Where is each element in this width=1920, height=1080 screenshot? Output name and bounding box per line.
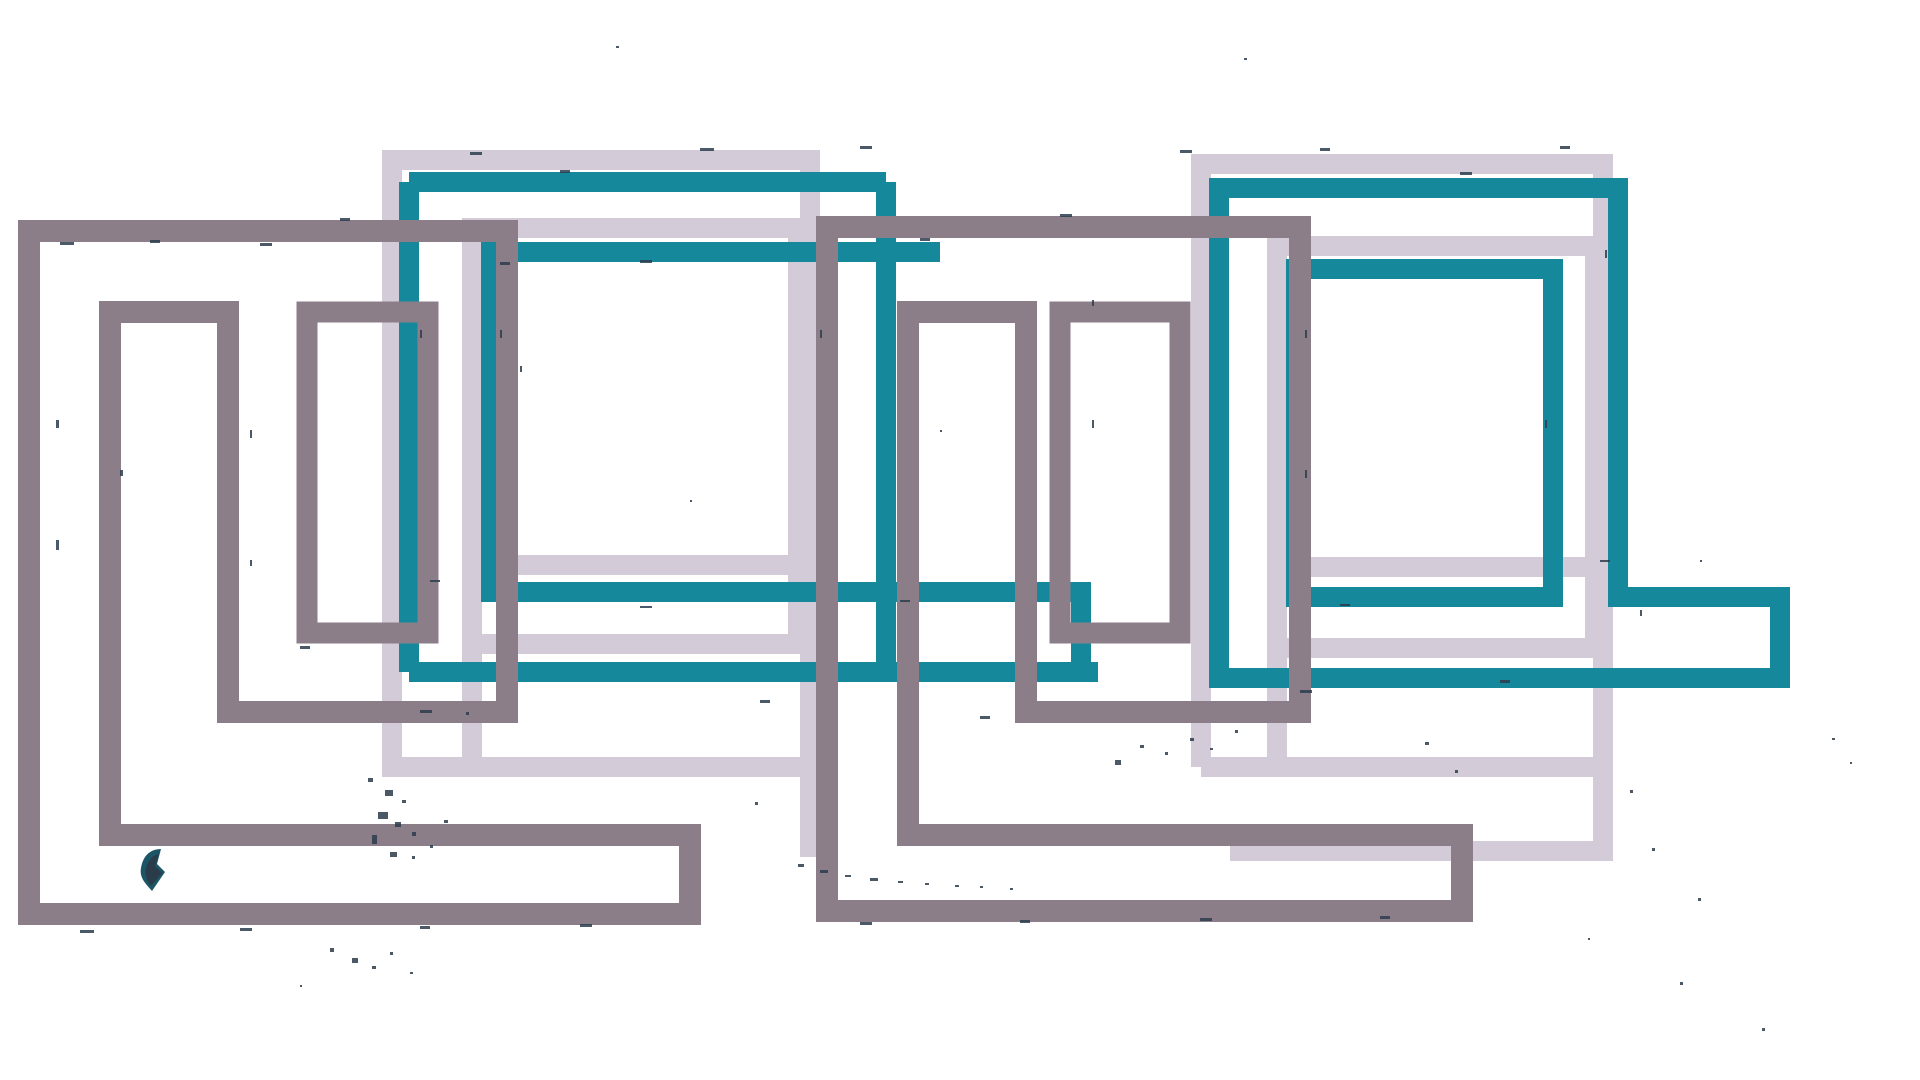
speckle: [820, 330, 822, 338]
speckle: [1020, 920, 1030, 923]
speckle: [898, 881, 903, 883]
speckle: [1115, 760, 1121, 765]
artwork-canvas: [0, 0, 1920, 1080]
speckle: [430, 580, 440, 582]
speckle: [470, 152, 482, 155]
speckle: [420, 710, 432, 713]
speckle: [1010, 888, 1013, 890]
speckle: [352, 958, 358, 963]
speckle: [560, 170, 570, 173]
speckle: [1092, 420, 1094, 428]
speckle: [1850, 762, 1852, 764]
speckle: [845, 875, 851, 877]
speckle: [80, 930, 94, 933]
speckle: [1092, 300, 1094, 306]
speckle: [395, 822, 401, 827]
speckle: [900, 600, 910, 602]
speckle: [430, 845, 433, 848]
speckle: [520, 366, 522, 372]
speckle: [1235, 730, 1238, 733]
speckle: [60, 242, 74, 245]
speckle: [330, 948, 334, 952]
speckle: [412, 832, 416, 836]
speckle: [1200, 918, 1212, 921]
speckle: [1640, 610, 1642, 616]
speckle: [1600, 560, 1610, 562]
speckle: [372, 835, 377, 844]
speckle: [1500, 680, 1510, 683]
speckle: [1630, 790, 1633, 793]
speckle: [1652, 848, 1655, 851]
speckle: [870, 878, 878, 881]
speckle: [444, 820, 448, 823]
speckle: [410, 972, 413, 974]
speckle: [1455, 770, 1458, 773]
speckle: [1545, 420, 1547, 428]
speckle: [1210, 748, 1213, 750]
speckle: [402, 800, 406, 803]
speckle: [390, 952, 393, 955]
speckle: [500, 330, 502, 338]
speckle: [760, 700, 770, 703]
speckle: [372, 966, 376, 969]
speckle: [420, 926, 430, 929]
speckle: [1762, 1028, 1765, 1031]
speckle: [1305, 470, 1307, 478]
speckle: [1165, 752, 1168, 755]
speckle: [755, 802, 758, 805]
speckle: [980, 886, 983, 888]
speckle: [1560, 146, 1570, 149]
speckle: [300, 985, 302, 987]
speckle: [340, 218, 350, 221]
speckle: [390, 852, 397, 857]
speckle: [980, 716, 990, 719]
speckle: [700, 148, 714, 151]
speckle: [580, 924, 592, 927]
abstract-artwork: [0, 0, 1920, 1080]
speckle: [820, 870, 828, 873]
speckle: [860, 922, 872, 925]
speckle: [1425, 742, 1429, 745]
speckle: [120, 470, 123, 476]
speckle: [412, 856, 415, 859]
speckle: [250, 430, 252, 438]
speckle: [798, 864, 804, 867]
speckle: [640, 260, 652, 263]
speckle: [368, 778, 373, 782]
speckle: [56, 540, 59, 550]
speckle: [1190, 738, 1194, 741]
speckle: [1460, 172, 1472, 175]
speckle: [378, 812, 388, 819]
speckle: [690, 500, 692, 502]
speckle: [1320, 148, 1330, 151]
speckle: [466, 712, 469, 715]
speckle: [1140, 745, 1144, 748]
speckle: [1300, 690, 1312, 693]
speckle: [616, 46, 619, 48]
speckle: [500, 262, 510, 265]
speckle: [860, 146, 872, 149]
speckle: [1340, 604, 1350, 606]
speckle: [56, 420, 59, 428]
speckle: [1380, 916, 1390, 919]
speckle: [1832, 738, 1835, 740]
speckle: [925, 883, 929, 885]
speckle: [420, 330, 422, 338]
speckle: [150, 240, 160, 243]
speckle: [1180, 150, 1192, 153]
speckle: [955, 885, 959, 887]
speckle: [1305, 330, 1307, 338]
speckle: [1588, 938, 1590, 940]
speckle: [240, 928, 252, 931]
speckle: [385, 790, 393, 796]
speckle: [1605, 250, 1607, 258]
speckle: [1700, 560, 1702, 562]
speckle: [260, 243, 272, 246]
speckle: [920, 238, 930, 241]
speckle: [1060, 214, 1072, 217]
speckle: [640, 606, 652, 608]
speckle: [300, 646, 310, 649]
speckle: [250, 560, 252, 566]
speckle: [1698, 898, 1701, 901]
speckle: [940, 430, 942, 432]
speckle: [1680, 982, 1683, 985]
speckle: [1244, 58, 1247, 60]
